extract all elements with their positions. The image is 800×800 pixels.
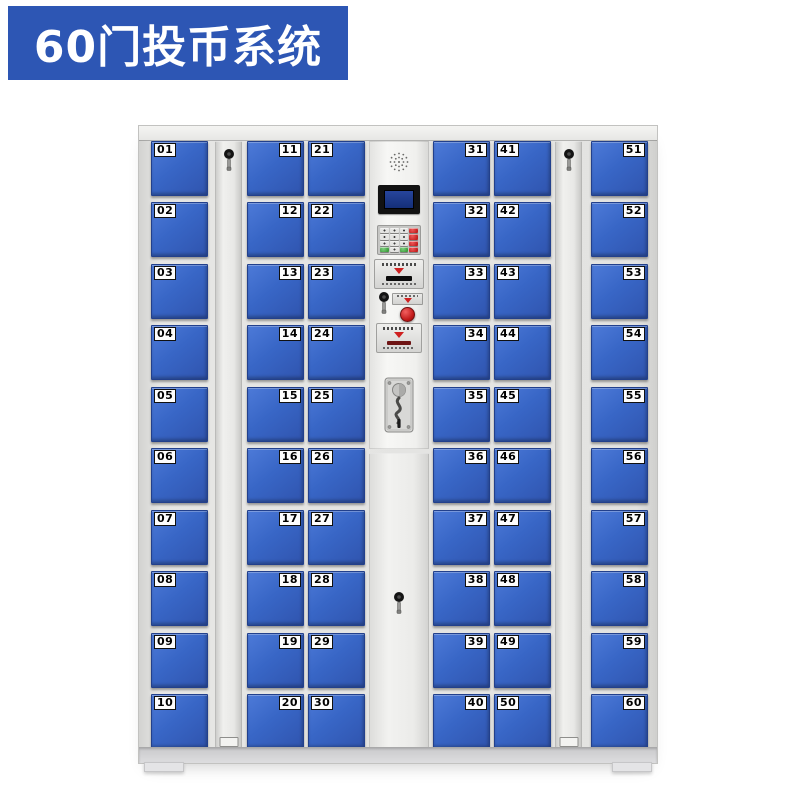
door-number-label: 44 <box>497 327 519 341</box>
door-number-label: 06 <box>154 450 176 464</box>
door-number-label: 11 <box>279 143 301 157</box>
locker-column-11-20: 11121314151617181920 <box>247 141 304 749</box>
door-number-label: 28 <box>311 573 333 587</box>
door-number-label: 57 <box>623 512 645 526</box>
locker-door-19[interactable]: 19 <box>247 633 304 688</box>
door-number-label: 59 <box>623 635 645 649</box>
locker-door-06[interactable]: 06 <box>151 448 208 503</box>
master-key-lock[interactable] <box>221 148 237 182</box>
locker-column-51-60: 51525354555657585960 <box>591 141 648 749</box>
locker-door-35[interactable]: 35 <box>433 387 490 442</box>
instruction-text-row <box>383 327 414 330</box>
door-number-label: 38 <box>465 573 487 587</box>
locker-door-10[interactable]: 10 <box>151 694 208 749</box>
locker-door-34[interactable]: 34 <box>433 325 490 380</box>
locker-door-33[interactable]: 33 <box>433 264 490 319</box>
locker-door-60[interactable]: 60 <box>591 694 648 749</box>
door-number-label: 19 <box>279 635 301 649</box>
locker-door-11[interactable]: 11 <box>247 141 304 196</box>
key-lock-icon <box>391 606 407 625</box>
door-number-label: 15 <box>279 389 301 403</box>
cabinet-top-strip <box>139 126 657 140</box>
door-number-label: 20 <box>279 696 301 710</box>
door-number-label: 36 <box>465 450 487 464</box>
coin-acceptor[interactable] <box>384 377 414 437</box>
locker-column-01-10: 01020304050607080910 <box>151 141 208 749</box>
locker-door-09[interactable]: 09 <box>151 633 208 688</box>
speaker-grill-icon <box>386 149 412 179</box>
red-start-button[interactable] <box>400 307 415 322</box>
door-number-label: 31 <box>465 143 487 157</box>
locker-door-13[interactable]: 13 <box>247 264 304 319</box>
locker-door-45[interactable]: 45 <box>494 387 551 442</box>
door-number-label: 53 <box>623 266 645 280</box>
locker-door-56[interactable]: 56 <box>591 448 648 503</box>
locker-door-52[interactable]: 52 <box>591 202 648 257</box>
keypad-key[interactable] <box>390 234 399 239</box>
door-number-label: 09 <box>154 635 176 649</box>
locker-door-40[interactable]: 40 <box>433 694 490 749</box>
locker-door-42[interactable]: 42 <box>494 202 551 257</box>
door-number-label: 50 <box>497 696 519 710</box>
master-key-lock[interactable] <box>561 148 577 182</box>
door-number-label: 43 <box>497 266 519 280</box>
door-number-label: 02 <box>154 204 176 218</box>
keypad-key[interactable] <box>380 228 389 233</box>
door-number-label: 54 <box>623 327 645 341</box>
door-number-label: 03 <box>154 266 176 280</box>
locker-door-43[interactable]: 43 <box>494 264 551 319</box>
master-key-panel <box>215 141 242 749</box>
locker-door-30[interactable]: 30 <box>308 694 365 749</box>
locker-door-12[interactable]: 12 <box>247 202 304 257</box>
door-number-label: 21 <box>311 143 333 157</box>
locker-door-23[interactable]: 23 <box>308 264 365 319</box>
keypad-key[interactable] <box>409 228 418 233</box>
keypad-key[interactable] <box>400 228 409 233</box>
coin-arrow-icon <box>394 332 404 338</box>
door-number-label: 37 <box>465 512 487 526</box>
door-number-label: 16 <box>279 450 301 464</box>
door-number-label: 17 <box>279 512 301 526</box>
instruction-text-row <box>382 283 416 285</box>
door-number-label: 23 <box>311 266 333 280</box>
door-number-label: 22 <box>311 204 333 218</box>
door-number-label: 47 <box>497 512 519 526</box>
instruction-text-row <box>397 295 418 297</box>
door-number-label: 49 <box>497 635 519 649</box>
locker-door-27[interactable]: 27 <box>308 510 365 565</box>
keypad-key[interactable] <box>400 241 409 246</box>
locker-door-14[interactable]: 14 <box>247 325 304 380</box>
locker-door-53[interactable]: 53 <box>591 264 648 319</box>
locker-door-07[interactable]: 07 <box>151 510 208 565</box>
locker-column-21-30: 21222324252627282930 <box>308 141 365 749</box>
door-number-label: 56 <box>623 450 645 464</box>
keypad-key[interactable] <box>390 228 399 233</box>
door-number-label: 14 <box>279 327 301 341</box>
insert-arrow-icon <box>394 268 404 274</box>
service-door[interactable] <box>369 453 429 749</box>
locker-door-38[interactable]: 38 <box>433 571 490 626</box>
coin-slot-marker <box>387 341 411 345</box>
title-banner: 60门投币系统 <box>8 6 348 80</box>
locker-column-31-40: 31323334353637383940 <box>433 141 490 749</box>
locker-column-41-50: 41424344454647484950 <box>494 141 551 749</box>
door-number-label: 32 <box>465 204 487 218</box>
locker-door-57[interactable]: 57 <box>591 510 648 565</box>
keypad-key[interactable] <box>400 247 409 252</box>
door-number-label: 41 <box>497 143 519 157</box>
door-number-label: 18 <box>279 573 301 587</box>
door-number-label: 48 <box>497 573 519 587</box>
locker-door-03[interactable]: 03 <box>151 264 208 319</box>
door-number-label: 07 <box>154 512 176 526</box>
door-number-label: 12 <box>279 204 301 218</box>
keypad-key[interactable] <box>409 247 418 252</box>
card-slot[interactable] <box>386 276 412 281</box>
door-number-label: 39 <box>465 635 487 649</box>
door-number-label: 25 <box>311 389 333 403</box>
locker-door-04[interactable]: 04 <box>151 325 208 380</box>
locker-door-08[interactable]: 08 <box>151 571 208 626</box>
locker-door-37[interactable]: 37 <box>433 510 490 565</box>
locker-door-05[interactable]: 05 <box>151 387 208 442</box>
lcd-display <box>378 185 420 214</box>
button-instruction-label <box>392 293 423 305</box>
door-number-label: 34 <box>465 327 487 341</box>
locker-door-55[interactable]: 55 <box>591 387 648 442</box>
locker-door-16[interactable]: 16 <box>247 448 304 503</box>
locker-door-32[interactable]: 32 <box>433 202 490 257</box>
door-number-label: 46 <box>497 450 519 464</box>
locker-door-49[interactable]: 49 <box>494 633 551 688</box>
door-number-label: 35 <box>465 389 487 403</box>
door-number-label: 04 <box>154 327 176 341</box>
cabinet-base <box>139 747 657 763</box>
door-number-label: 08 <box>154 573 176 587</box>
cabinet-foot <box>612 762 652 772</box>
locker-door-29[interactable]: 29 <box>308 633 365 688</box>
door-number-label: 45 <box>497 389 519 403</box>
master-key-panel <box>555 141 582 749</box>
locker-door-44[interactable]: 44 <box>494 325 551 380</box>
locker-door-39[interactable]: 39 <box>433 633 490 688</box>
locker-door-20[interactable]: 20 <box>247 694 304 749</box>
keypad-key[interactable] <box>380 247 389 252</box>
key-lock-icon <box>221 163 237 182</box>
locker-door-02[interactable]: 02 <box>151 202 208 257</box>
locker-door-21[interactable]: 21 <box>308 141 365 196</box>
banner-title: 60门投币系统 <box>34 11 322 75</box>
locker-door-15[interactable]: 15 <box>247 387 304 442</box>
locker-door-26[interactable]: 26 <box>308 448 365 503</box>
lcd-screen <box>384 190 414 209</box>
locker-door-48[interactable]: 48 <box>494 571 551 626</box>
vent-slot <box>219 737 238 747</box>
locker-door-25[interactable]: 25 <box>308 387 365 442</box>
instruction-text-row <box>383 347 414 349</box>
instruction-text-row <box>382 263 416 266</box>
cabinet-foot <box>144 762 184 772</box>
locker-door-18[interactable]: 18 <box>247 571 304 626</box>
keypad-key[interactable] <box>380 241 389 246</box>
service-door-lock[interactable] <box>391 591 407 625</box>
door-number-label: 10 <box>154 696 176 710</box>
locker-door-24[interactable]: 24 <box>308 325 365 380</box>
door-number-label: 26 <box>311 450 333 464</box>
locker-door-17[interactable]: 17 <box>247 510 304 565</box>
keypad-key[interactable] <box>390 247 399 252</box>
keypad-key[interactable] <box>380 234 389 239</box>
door-number-label: 42 <box>497 204 519 218</box>
locker-door-51[interactable]: 51 <box>591 141 648 196</box>
locker-door-50[interactable]: 50 <box>494 694 551 749</box>
locker-cabinet: 01020304050607080910 1112131415161718192… <box>138 125 658 764</box>
door-number-label: 01 <box>154 143 176 157</box>
door-number-label: 58 <box>623 573 645 587</box>
door-number-label: 30 <box>311 696 333 710</box>
keypad-key[interactable] <box>409 241 418 246</box>
locker-door-22[interactable]: 22 <box>308 202 365 257</box>
door-number-label: 60 <box>623 696 645 710</box>
locker-door-59[interactable]: 59 <box>591 633 648 688</box>
door-number-label: 05 <box>154 389 176 403</box>
door-number-label: 33 <box>465 266 487 280</box>
override-key-lock[interactable] <box>376 291 392 325</box>
locker-door-31[interactable]: 31 <box>433 141 490 196</box>
door-number-label: 27 <box>311 512 333 526</box>
door-number-label: 13 <box>279 266 301 280</box>
card-reader-plate <box>374 259 424 289</box>
vent-slot <box>559 737 578 747</box>
locker-door-28[interactable]: 28 <box>308 571 365 626</box>
keypad-key[interactable] <box>390 241 399 246</box>
locker-door-58[interactable]: 58 <box>591 571 648 626</box>
locker-door-54[interactable]: 54 <box>591 325 648 380</box>
numeric-keypad <box>377 225 421 255</box>
press-arrow-icon <box>404 298 412 303</box>
product-image: 60门投币系统 01020304050607080910 11121314151… <box>0 0 800 800</box>
locker-door-36[interactable]: 36 <box>433 448 490 503</box>
keypad-key[interactable] <box>409 234 418 239</box>
door-number-label: 55 <box>623 389 645 403</box>
locker-door-47[interactable]: 47 <box>494 510 551 565</box>
locker-door-46[interactable]: 46 <box>494 448 551 503</box>
locker-door-41[interactable]: 41 <box>494 141 551 196</box>
door-number-label: 52 <box>623 204 645 218</box>
door-number-label: 24 <box>311 327 333 341</box>
key-lock-icon <box>561 163 577 182</box>
door-number-label: 29 <box>311 635 333 649</box>
locker-door-01[interactable]: 01 <box>151 141 208 196</box>
keypad-key[interactable] <box>400 234 409 239</box>
control-panel <box>369 141 429 449</box>
door-number-label: 40 <box>465 696 487 710</box>
coin-instruction-plate <box>376 323 422 353</box>
door-number-label: 51 <box>623 143 645 157</box>
